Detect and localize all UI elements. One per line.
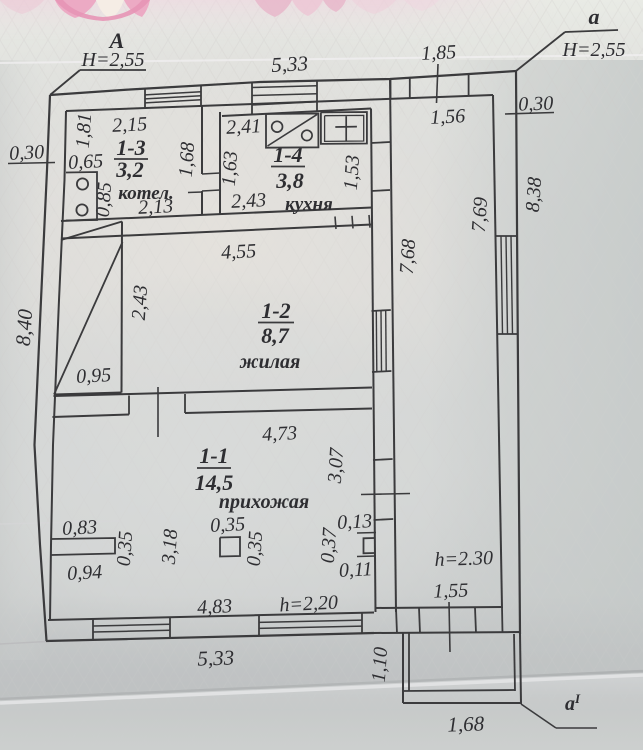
svg-text:0,11: 0,11 [338,558,373,582]
svg-text:5,33: 5,33 [271,51,309,77]
svg-text:прихожая: прихожая [219,491,309,513]
svg-text:0,30: 0,30 [9,141,45,165]
svg-text:0,35: 0,35 [210,513,246,537]
svg-text:а: а [589,4,600,29]
svg-text:7,68: 7,68 [396,238,420,274]
svg-text:кухня: кухня [285,194,333,215]
svg-text:2,43: 2,43 [231,189,267,213]
svg-text:Н=2,55: Н=2,55 [81,49,145,71]
svg-text:0,13: 0,13 [337,510,373,534]
svg-text:3,8: 3,8 [275,168,304,193]
svg-text:0,85: 0,85 [92,181,116,217]
svg-text:1,81: 1,81 [72,112,96,148]
svg-text:1-4: 1-4 [273,142,302,167]
svg-text:4,55: 4,55 [221,240,257,264]
svg-text:1-2: 1-2 [261,298,290,323]
svg-text:8,7: 8,7 [261,323,290,348]
svg-text:1,63: 1,63 [218,150,242,186]
svg-text:1,56: 1,56 [430,105,466,129]
svg-text:1,85: 1,85 [421,41,457,65]
svg-text:7,69: 7,69 [468,196,492,232]
svg-text:0,35: 0,35 [113,530,137,566]
svg-text:жилая: жилая [239,351,301,373]
svg-text:0,35: 0,35 [243,530,267,566]
svg-text:3,2: 3,2 [115,157,144,182]
svg-text:1,10: 1,10 [368,646,392,682]
svg-text:0,65: 0,65 [68,150,104,174]
svg-text:1,53: 1,53 [340,154,364,190]
svg-text:0,95: 0,95 [76,364,112,388]
svg-text:0,83: 0,83 [62,516,98,540]
svg-text:Н=2,55: Н=2,55 [562,39,626,61]
svg-text:3,18: 3,18 [158,528,182,565]
svg-text:2,43: 2,43 [128,284,152,320]
svg-text:8,40: 8,40 [11,308,38,347]
svg-text:3,07: 3,07 [324,446,349,484]
svg-text:4,73: 4,73 [262,422,298,446]
svg-text:8,38: 8,38 [522,176,546,212]
svg-text:1,68: 1,68 [447,711,485,736]
svg-text:0,94: 0,94 [67,561,103,585]
svg-text:1,55: 1,55 [433,579,469,602]
svg-text:1-1: 1-1 [199,443,228,468]
svg-text:2,13: 2,13 [138,195,174,219]
svg-text:2,41: 2,41 [226,115,262,139]
svg-text:1,68: 1,68 [175,141,199,177]
svg-text:5,33: 5,33 [197,645,235,670]
svg-text:2,15: 2,15 [112,113,148,137]
svg-text:4,83: 4,83 [197,595,233,619]
svg-text:h=2.30: h=2.30 [434,547,493,571]
svg-text:h=2,20: h=2,20 [279,591,339,616]
